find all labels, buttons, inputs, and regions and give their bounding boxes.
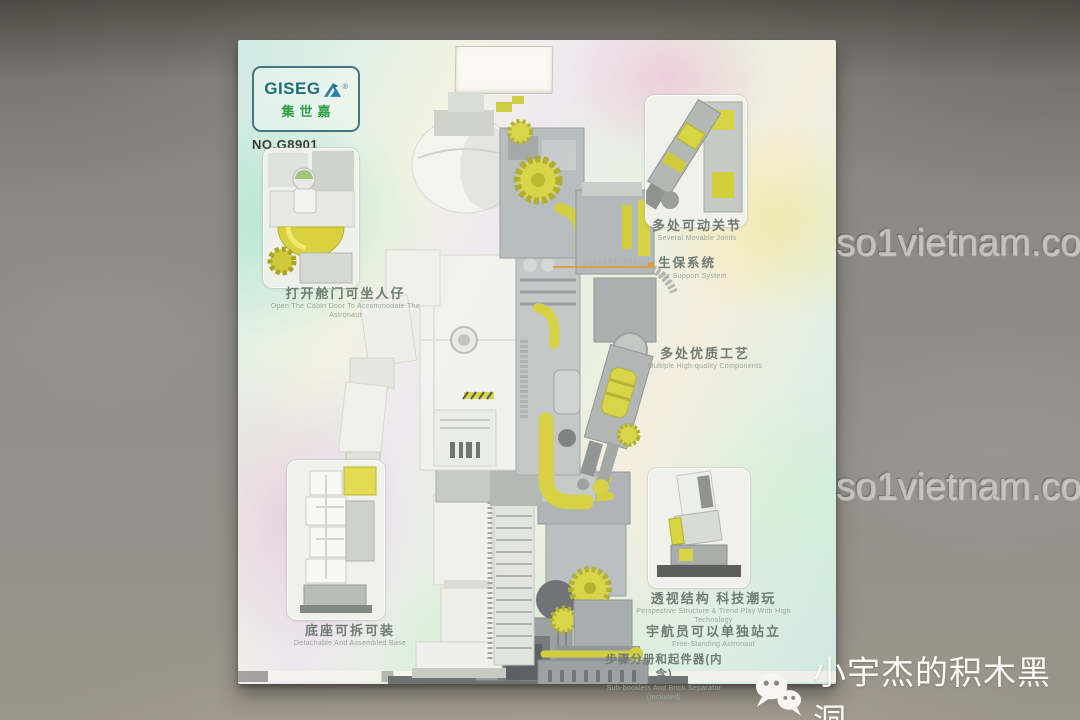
wechat-account-name: 小宇杰的积木黑洞 (813, 646, 1080, 720)
product-box-back: GISEG ® 集世嘉 NO.G8901 (238, 40, 836, 684)
photo-backdrop: GISEG ® 集世嘉 NO.G8901 (0, 0, 1080, 720)
callout-cabin-image (263, 148, 359, 288)
feature-cabin-zh: 打开舱门可坐人仔 (258, 286, 433, 301)
feature-quality: 多处优质工艺 Multiple High-quality Components (645, 346, 765, 372)
site-watermark-top: so1vietnam.com (836, 222, 1080, 265)
feature-perspective: 透视结构 科技潮玩 Perspective Structure & Trend … (636, 591, 791, 625)
wechat-watermark: 小宇杰的积木黑洞 (750, 646, 1080, 720)
feature-base-en: Detachable And Assembled Base (270, 640, 430, 649)
wechat-icon (750, 668, 805, 720)
feature-joints-zh: 多处可动关节 (627, 218, 767, 233)
callout-arm-image (645, 95, 747, 227)
feature-booklet: 步骤分册和起件器(内含) Sub-booklets And Brick Sepa… (598, 653, 730, 702)
feature-life-zh: 生保系统 (658, 256, 778, 271)
life-support-pointer-tick (648, 262, 654, 268)
feature-perspective-en: Perspective Structure & Trend Play With … (636, 608, 791, 625)
feature-cabin-en: Open The Cabin Door To Accommodate The A… (258, 303, 433, 320)
feature-quality-zh: 多处优质工艺 (645, 346, 765, 361)
feature-cabin: 打开舱门可坐人仔 Open The Cabin Door To Accommod… (258, 286, 433, 320)
feature-life-en: Life Support System (658, 273, 778, 282)
feature-standing-zh: 宇航员可以单独站立 (636, 624, 791, 639)
feature-quality-en: Multiple High-quality Components (645, 363, 765, 372)
callout-leg-image (287, 460, 385, 620)
feature-life-support: 生保系统 Life Support System (658, 256, 778, 282)
feature-base-zh: 底座可拆可装 (270, 623, 430, 638)
site-watermark-bottom: so1vietnam.com (836, 466, 1080, 509)
callout-foot-image (648, 468, 750, 588)
feature-booklet-zh: 步骤分册和起件器(内含) (598, 653, 730, 683)
life-support-pointer-line (553, 266, 648, 268)
feature-joints-en: Several Movable Joints (627, 235, 767, 244)
feature-booklet-en: Sub-booklets And Brick Separator (Includ… (598, 685, 730, 702)
feature-joints: 多处可动关节 Several Movable Joints (627, 218, 767, 244)
feature-base: 底座可拆可装 Detachable And Assembled Base (270, 623, 430, 649)
feature-perspective-zh: 透视结构 科技潮玩 (636, 591, 791, 606)
